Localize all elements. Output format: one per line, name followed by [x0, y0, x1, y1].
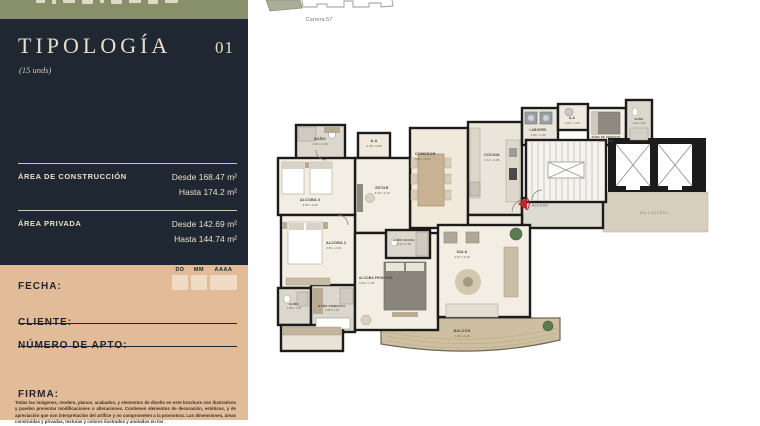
label-bath-top: BAÑO [314, 136, 326, 141]
label-aa-duct: A.A [371, 139, 378, 143]
client-field[interactable]: CLIENTE: [18, 312, 237, 324]
typology-number: 01 [215, 38, 234, 58]
signature-label: FIRMA: [18, 389, 59, 400]
private-area-row: ÁREA PRIVADA Desde 142.69 m² Hasta 144.7… [18, 217, 237, 247]
site-location-map: Carrera 57 [262, 0, 412, 26]
apartment-number-label: NÚMERO DE APTO: [18, 340, 127, 351]
stair-landing [548, 162, 584, 178]
date-label: FECHA: [18, 281, 62, 292]
label-zona-servicio: ZONA DE SERVICIO [592, 135, 621, 139]
dims-bath-social: 2.10 x 1.36 [397, 242, 412, 246]
dims-bath-servicio: 1.26 x 2.06 [632, 121, 646, 125]
dims-cocina: 3.11 x 4.06 [484, 158, 499, 162]
label-labores: LABORES [530, 128, 547, 132]
balcony-label: BALCÓN [454, 328, 471, 333]
typology-panel: TIPOLOGÍA 01 (15 unds) ÁREA DE CONSTRUCC… [0, 19, 248, 265]
construction-area-label: ÁREA DE CONSTRUCCIÓN [18, 170, 127, 200]
sidebar: TIPOLOGÍA 01 (15 unds) ÁREA DE CONSTRUCC… [0, 0, 248, 420]
dims-bath-small: 1.90 x 1.35 [287, 306, 302, 310]
client-label: CLIENTE: [18, 317, 72, 328]
private-area-from: Desde 142.69 m² [172, 217, 237, 232]
plant-icon [510, 228, 522, 240]
construction-area-to: Hasta 174.2 m² [172, 185, 237, 200]
legal-disclaimer: Todas las imágenes, renders, planos, aca… [15, 400, 236, 426]
dims-alcoba-principal: 3.40 x 3.35 [359, 281, 375, 285]
form-panel: FECHA: DD MM AAAA CLIENTE: NÚMERO DE APT… [0, 265, 248, 420]
page-title: TIPOLOGÍA [18, 33, 171, 59]
brand-logo-clipped [36, 0, 178, 4]
dims-bath-top: 2.40 x 1.60 [312, 142, 328, 146]
hall-acceso: HALL ACCESO [603, 192, 708, 232]
private-area-label: ÁREA PRIVADA [18, 217, 81, 247]
label-sala: SALA [457, 250, 468, 254]
elevator-block [608, 138, 706, 192]
street-label: Carrera 57 [306, 17, 333, 23]
date-aaaa-caption: AAAA [215, 267, 233, 273]
date-mm-caption: MM [194, 267, 204, 273]
neighboring-buildings-outline [302, 0, 393, 7]
dims-alcoba-2: 3.65 x 3.20 [326, 246, 342, 250]
divider [18, 163, 237, 164]
divider [18, 210, 237, 211]
dims-aa-duct: 3.48 x 0.88 [366, 144, 382, 148]
dims-alcoba-3: 3.65 x 3.00 [302, 203, 318, 207]
ac-unit-icon [565, 108, 573, 116]
label-comedor: COMEDOR [415, 152, 436, 156]
private-area-to: Hasta 144.74 m² [172, 232, 237, 247]
date-dd-caption: DD [176, 267, 185, 273]
elevator-2 [658, 144, 692, 190]
furniture-zona-servicio [592, 112, 620, 134]
room-estar [355, 158, 410, 233]
date-aaaa-field[interactable] [210, 275, 237, 290]
construction-area-row: ÁREA DE CONSTRUCCIÓN Desde 168.47 m² Has… [18, 170, 237, 200]
dims-comedor: 3.48 x 4.13 [415, 157, 431, 161]
access-label: ACCESO [532, 204, 548, 208]
dims-zona-servicio: 2.10 x 2.31 [599, 139, 613, 143]
label-alcoba-2: ALCOBA 2 [326, 241, 346, 245]
label-alcoba-principal: ALCOBA PRINCIPAL [359, 276, 394, 280]
date-mm-field[interactable] [191, 275, 207, 290]
dims-labores: 1.60 x 1.30 [530, 133, 546, 137]
dims-sala: 4.57 x 3.33 [454, 255, 470, 259]
vestier-wardrobe [283, 327, 341, 335]
apartment-number-field[interactable]: NÚMERO DE APTO: [18, 335, 237, 347]
hall-acceso-label: HALL ACCESO [640, 211, 669, 215]
apartment-floor-plan: HALL ACCESO BALCÓN 7.40 x 1.30 [266, 92, 712, 374]
plant-icon [543, 321, 553, 331]
highlighted-building-footprint [266, 0, 302, 11]
label-cocina: COCINA [484, 153, 500, 157]
brand-header [0, 0, 248, 19]
label-estar: ESTAR [375, 186, 388, 190]
construction-area-from: Desde 168.47 m² [172, 170, 237, 185]
label-aa-small: A.A [569, 116, 576, 120]
dims-estar: 3.43 x 3.13 [374, 191, 390, 195]
date-dd-field[interactable] [172, 275, 188, 290]
dims-aa-small: 1.00 x 1.06 [564, 121, 580, 125]
units-note: (15 unds) [19, 65, 51, 75]
elevator-1 [616, 144, 650, 190]
brochure-page: TIPOLOGÍA 01 (15 unds) ÁREA DE CONSTRUCC… [0, 0, 760, 420]
furniture-comedor [411, 154, 451, 206]
label-alcoba-3: ALCOBA 3 [300, 198, 320, 202]
dims-bath-principal: 3.30 x 2.10 [325, 308, 340, 312]
balcony-dims: 7.40 x 1.30 [454, 334, 470, 338]
